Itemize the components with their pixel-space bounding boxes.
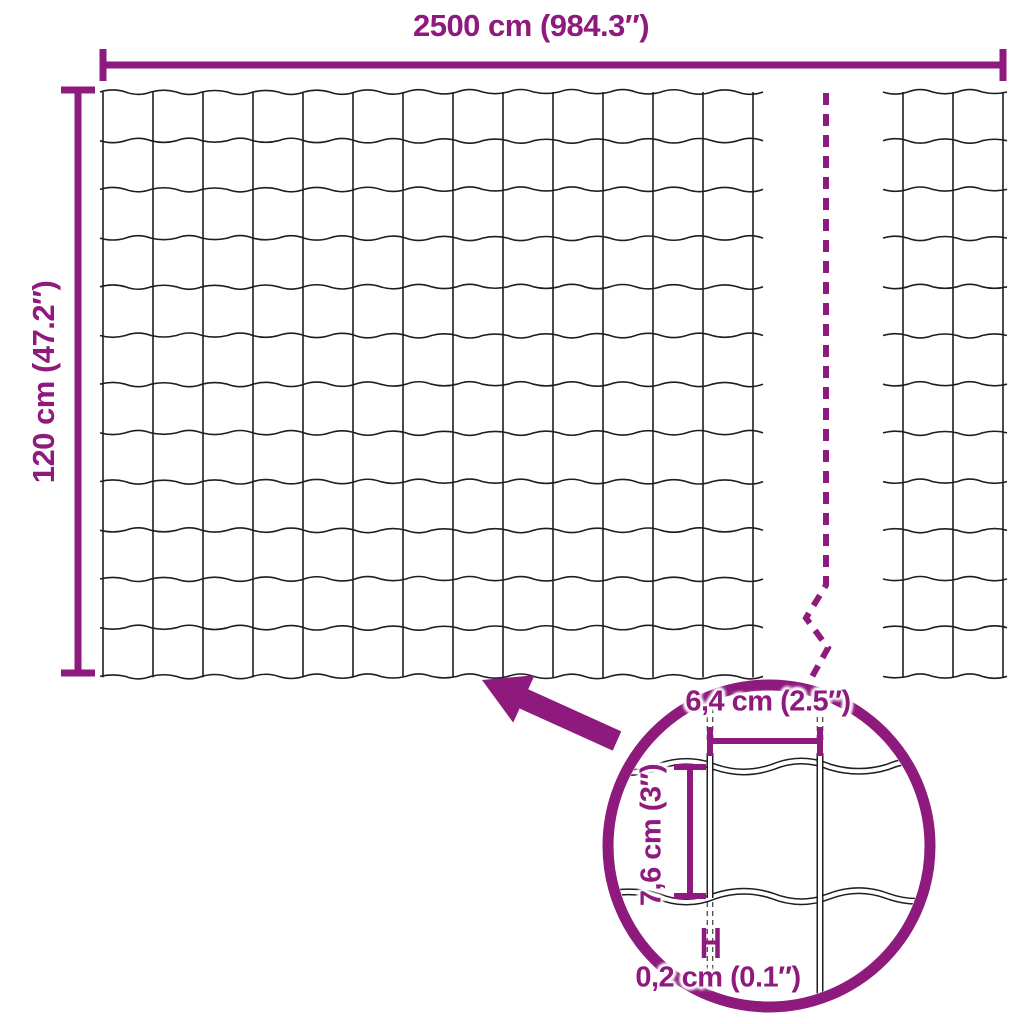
wire-thickness-label: 0,2 cm (0.1″) xyxy=(635,962,800,995)
detail-dimension-lines xyxy=(674,727,820,896)
fence-dimension-diagram: 2500 cm (984.3″) 120 cm (47.2″) 6,4 cm (… xyxy=(0,0,1024,1024)
overall-width-label: 2500 cm (984.3″) xyxy=(413,8,649,44)
overall-height-label: 120 cm (47.2″) xyxy=(26,281,62,484)
diagram-canvas xyxy=(0,0,1024,1024)
fence-mesh-right xyxy=(883,90,1007,679)
mesh-opening-width-label: 6,4 cm (2.5″) xyxy=(685,686,850,719)
break-line xyxy=(806,93,828,684)
mesh-opening-height-label: 7,6 cm (3″) xyxy=(636,764,669,906)
wire-thickness-marker xyxy=(704,928,718,958)
zoom-arrow-icon xyxy=(482,675,621,750)
fence-mesh xyxy=(100,90,763,679)
